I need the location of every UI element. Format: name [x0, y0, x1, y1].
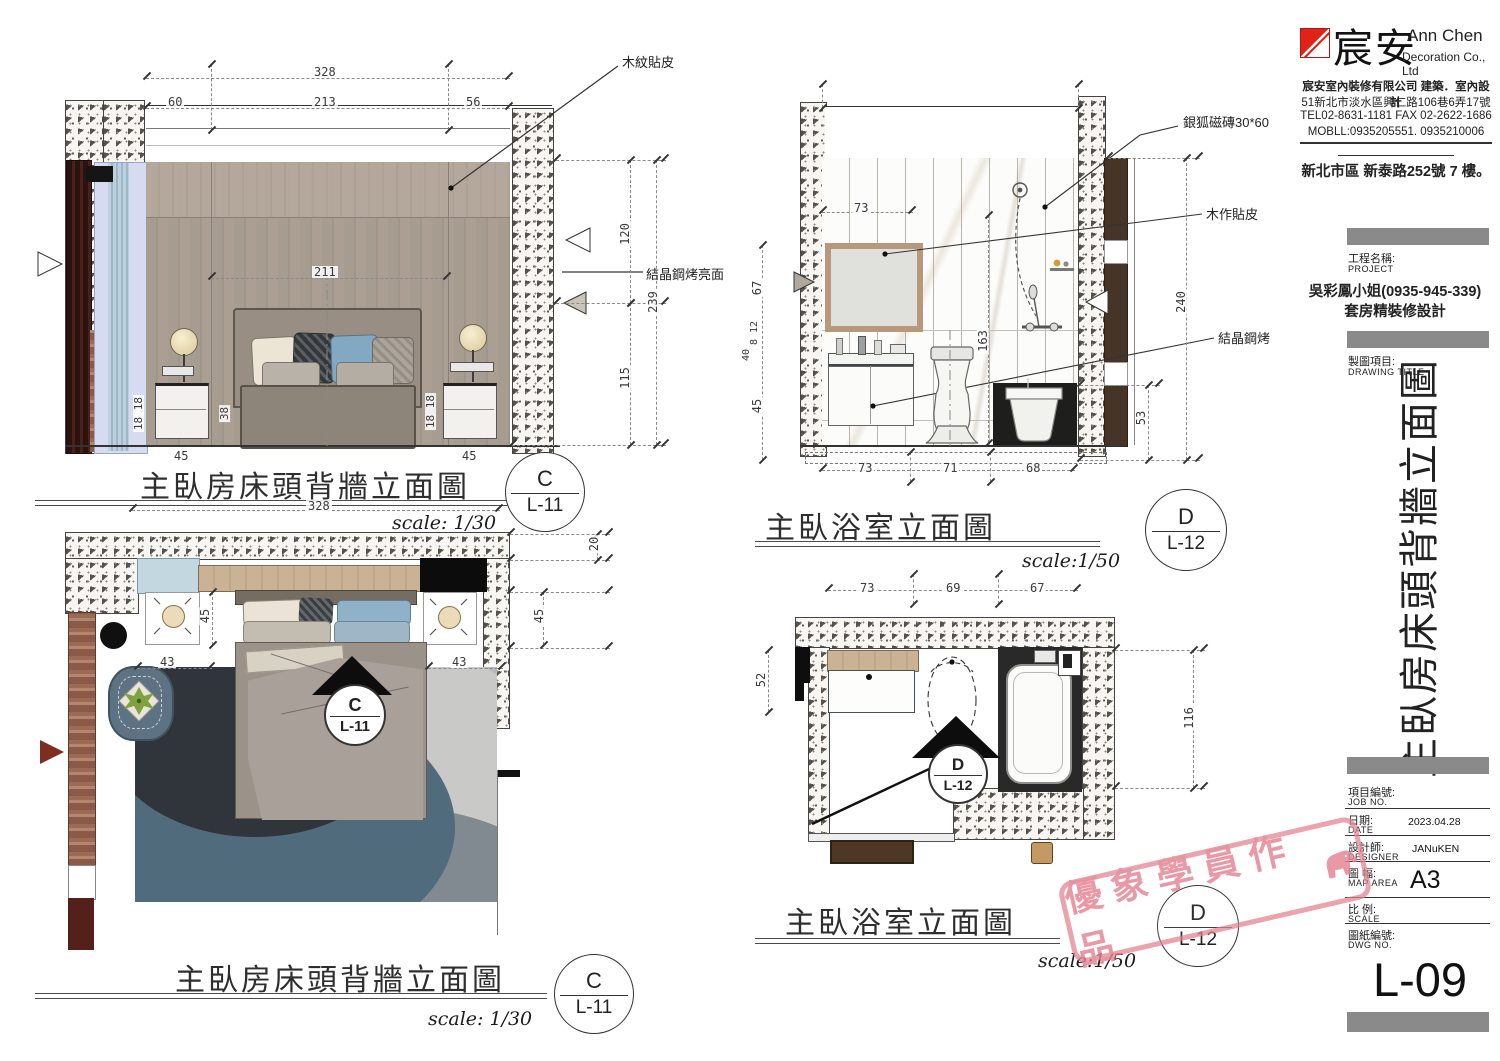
dim-bathplan-t3: 67 — [1028, 582, 1046, 594]
bedplan-stool-black — [100, 622, 127, 649]
dim-bedplan-20-label: 20 — [588, 535, 600, 553]
vanity-door-divider — [870, 366, 871, 424]
bedplan-left-brick-gap — [68, 865, 96, 900]
bedelev-panel-joint-h — [146, 217, 510, 218]
bathelev-toptick-r — [1078, 84, 1079, 108]
bedplan-black-cabinet — [420, 558, 487, 592]
client-name: 吳彩鳳小姐(0935-945-339) — [1290, 280, 1500, 301]
bathplan-title-underline — [755, 938, 1060, 944]
bidet-black-box — [993, 383, 1077, 445]
bathplan-black-step — [795, 683, 804, 701]
dim-bathelev-53-label: 53 — [1135, 409, 1147, 427]
project-label-en: PROJECT — [1348, 264, 1394, 274]
dim-bedplan-43l — [137, 668, 212, 669]
bedelev-panel-joint-1 — [211, 162, 212, 445]
dim-bedelev-inner-label: 211 — [312, 266, 338, 278]
bathplan-ttick-2 — [998, 574, 999, 604]
label-crystal-gloss: 結晶鋼烤亮面 — [646, 264, 724, 283]
dim-bathelev-b1: 73 — [856, 462, 874, 474]
vertical-drawing-title: 主臥房床頭背牆立面圖 — [1387, 368, 1439, 778]
bathplan-marker-circle: D L-12 — [928, 744, 988, 804]
site-address: 新北市區 新泰路252號 7 樓。 — [1294, 160, 1498, 181]
dim-bedelev-segtick-2 — [448, 64, 449, 130]
company-logo-en1: Ann Chen — [1407, 26, 1483, 46]
dim-bedelev-ext-bot — [512, 445, 666, 446]
nightstand-left-divider — [156, 409, 206, 410]
bedelev-sheer-curtain — [108, 163, 129, 451]
vanity-faucet — [858, 336, 866, 355]
nightstand-right — [443, 383, 497, 439]
vanity-bottle-1 — [836, 338, 843, 355]
bedelev-molding-line-1 — [146, 128, 510, 129]
dim-bathelev-l2: 8 12 — [750, 319, 760, 347]
bathplan-outside-cabinet — [830, 840, 914, 864]
dwg-no-label-en: DWG NO. — [1348, 940, 1392, 950]
bathplan-marker-letter: D — [934, 754, 982, 776]
dim-bathplan-t2: 69 — [944, 582, 962, 594]
dim-bathelev-l4: 45 — [751, 397, 763, 415]
bathelev-ref-sheet: L-12 — [1167, 532, 1205, 557]
graybar-4 — [1347, 1012, 1489, 1032]
dim-bathplan-t1: 73 — [858, 582, 876, 594]
bathplan-tub-faucet — [1034, 650, 1056, 663]
dim-nightstand-left: 18 18 — [133, 395, 144, 432]
titleblock-divider-short — [1338, 155, 1454, 156]
bedelev-right-wall-hatch — [512, 108, 554, 454]
tbl-line-4 — [1345, 897, 1490, 898]
tbl-line-3 — [1345, 861, 1490, 862]
tbl-line-1 — [1345, 808, 1490, 809]
bedplan-headwall-wood — [198, 565, 425, 592]
bedelev-scale: scale: 1/30 — [392, 512, 496, 534]
graybar-2 — [1347, 331, 1489, 348]
dim-bedelev-total-label: 328 — [312, 66, 338, 78]
lamp-right-shade — [459, 324, 487, 352]
dim-bedelev-seg2: 213 — [312, 96, 338, 108]
vanity-cabinet — [828, 366, 914, 426]
outlet-right — [450, 362, 494, 372]
bathelev-toptick-l — [822, 84, 823, 108]
bathelev-cabinet-edge — [1134, 158, 1135, 445]
bedplan-top-wall — [65, 532, 510, 560]
dim-bedplan-43r-label: 43 — [450, 656, 468, 668]
bathelev-cabinet-gap-1 — [1104, 240, 1128, 264]
bathelev-ext-bot — [1080, 460, 1200, 461]
bedelev-window-frame-piece — [86, 166, 113, 182]
graybar-1 — [1347, 228, 1489, 245]
bedplan-ref-letter: C — [560, 967, 627, 996]
dim-bathelev-top-label: 73 — [852, 202, 870, 214]
bedelev-ref-sheet: L-11 — [527, 494, 564, 519]
bedelev-ref-letter: C — [511, 465, 578, 494]
bathelev-btick-1 — [910, 452, 911, 482]
bedelev-wood-upper-band — [146, 162, 510, 217]
bathelev-right-wall — [1078, 96, 1106, 457]
bed-base — [240, 385, 416, 449]
company-info-2: 51新北市淡水區興仁路106巷6弄17號 — [1298, 94, 1494, 110]
dim-bedplan-head-label: 45 — [199, 607, 211, 625]
bedplan-ext-3 — [510, 592, 610, 593]
bathplan-title: 主臥浴室立面圖 — [785, 898, 1016, 942]
tbl-line-5 — [1345, 923, 1490, 924]
tbl-line-2 — [1345, 835, 1490, 836]
bathplan-vanity-knob — [866, 674, 872, 680]
nightstand-right-divider — [444, 409, 494, 410]
dim-bedelev-htotal-label: 239 — [647, 289, 659, 315]
bathplan-wc-paper — [1063, 654, 1072, 668]
dim-bedelev-45l: 45 — [172, 450, 190, 462]
bedelev-floor-line — [66, 445, 560, 447]
dim-bedplan-total-label: 328 — [306, 500, 332, 512]
dim-bathelev-b3: 68 — [1024, 462, 1042, 474]
dim-bedelev-h1-label: 120 — [619, 221, 631, 247]
bathplan-left-wall — [808, 647, 830, 840]
label-crystal-bake: 結晶鋼烤 — [1218, 328, 1270, 347]
designer-value: JANuKEN — [1412, 843, 1459, 855]
outlet-left — [162, 366, 194, 376]
bedplan-ext-4 — [510, 648, 610, 649]
dim-bedplan-43l-label: 43 — [158, 656, 176, 668]
bathelev-ref-letter: D — [1152, 503, 1221, 532]
company-info-3: TEL02-8631-1181 FAX 02-2622-1686 — [1298, 110, 1494, 122]
label-silverfox-tile: 銀狐磁磚30*60 — [1183, 112, 1269, 131]
bedplan-marker-circle: C L-11 — [324, 684, 386, 746]
dim-bathelev-b2: 71 — [941, 462, 959, 474]
dim-bedelev-45r: 45 — [460, 450, 478, 462]
bedelev-wall-top-line — [146, 105, 552, 106]
dim-bed-height: 38 — [219, 405, 230, 422]
toilet-plan-dashed — [928, 657, 976, 743]
mirror — [825, 243, 923, 332]
bedelev-title-underline — [35, 500, 513, 506]
bathelev-ceiling-band — [825, 106, 1078, 161]
bathplan-ttick-1 — [913, 574, 914, 604]
graybar-3 — [1347, 757, 1489, 774]
bedelev-ref-circle: C L-11 — [505, 452, 585, 532]
company-logo-mark — [1300, 28, 1330, 58]
bathelev-cabinet-strip — [1104, 158, 1128, 447]
dim-bedplan-45r-label: 45 — [533, 607, 545, 625]
bedplan-left-brick — [68, 612, 96, 867]
bathelev-cabinet-gap-2 — [1104, 362, 1128, 386]
vanity-counter — [828, 353, 914, 367]
bedplan-marker-sheet: L-11 — [340, 717, 370, 737]
company-logo-en2: Decoration Co., Ltd — [1402, 50, 1500, 78]
dim-bathplan-right-label: 116 — [1183, 705, 1195, 731]
bathplan-vanity-counter — [827, 650, 919, 672]
dim-bathelev-mid-label: 163 — [977, 328, 989, 354]
vanity-soap — [890, 344, 906, 354]
bathelev-title-underline — [755, 541, 1100, 547]
elephant-icon — [1316, 838, 1363, 884]
door-swing — [812, 762, 944, 824]
bedplan-pillow-5 — [334, 621, 410, 644]
bedplan-ref-sheet: L-11 — [576, 996, 613, 1021]
dim-bedelev-seg1: 60 — [166, 96, 184, 108]
bedelev-curtain-dark — [66, 160, 92, 454]
dim-bathelev-l1: 67 — [751, 279, 763, 297]
bathplan-top-wall — [795, 617, 1115, 649]
dim-bedelev-segtick-1 — [211, 64, 212, 130]
dim-bathelev-240-label: 240 — [1175, 289, 1187, 315]
bathelev-floor — [800, 445, 1126, 447]
project-name: 套房精裝修設計 — [1290, 300, 1500, 321]
bedplan-scale: scale: 1/30 — [428, 1008, 532, 1030]
vanity-bottle-2 — [874, 340, 882, 355]
bedplan-right-wall-line — [497, 770, 498, 935]
bedelev-molding-line-2 — [146, 145, 510, 146]
bedplan-lamp-right — [438, 606, 461, 629]
dim-bathplan-left-label: 52 — [755, 671, 767, 689]
bathelev-ref-circle: D L-12 — [1145, 489, 1227, 571]
date-value: 2023.04.28 — [1408, 816, 1461, 828]
armchair-cushion — [118, 676, 162, 729]
bathelev-scale: scale:1/50 — [1022, 550, 1120, 572]
dim-bathelev-l3: 40 — [742, 347, 752, 363]
bedplan-title-underline — [35, 993, 547, 999]
maparea-value: A3 — [1410, 866, 1441, 895]
dim-nightstand-right: 18 18 — [425, 393, 436, 430]
bathelev-btick-2 — [990, 452, 991, 482]
bedplan-left-wall — [65, 558, 139, 614]
bedplan-ref-circle: C L-11 — [554, 954, 634, 1034]
bedplan-left-brick-dark — [68, 898, 94, 950]
nightstand-left — [155, 383, 209, 439]
company-info-4: MOBLL:0935205551. 0935210006 — [1298, 126, 1494, 138]
titleblock-divider-1 — [1300, 142, 1492, 144]
dim-bedelev-h2-label: 115 — [619, 365, 631, 391]
bathplan-black-niche — [795, 647, 810, 683]
dim-bedelev-seg3: 56 — [464, 96, 482, 108]
bedplan-lightblue-cabinet — [137, 558, 200, 594]
bathplan-tub-inner — [1013, 672, 1063, 774]
bedplan-lamp-left — [162, 605, 185, 628]
bedplan-marker-letter: C — [330, 694, 380, 718]
dim-bathelev-left-chain — [762, 245, 763, 460]
job-no-label-en: JOB NO. — [1348, 797, 1388, 807]
bathplan-right-wall — [1082, 647, 1115, 840]
lamp-left-shade — [170, 328, 198, 356]
bathplan-outside-stool — [1031, 842, 1053, 864]
bedplan-pillow-4 — [243, 621, 331, 644]
label-wood-work-veneer: 木作貼皮 — [1206, 204, 1258, 223]
bathplan-marker-sheet: L-12 — [944, 776, 973, 794]
drawing-sheet: 328 60 213 56 211 120 115 239 18 18 18 1… — [0, 0, 1500, 1061]
sheet-number: L-09 — [1340, 952, 1500, 1007]
dim-bedelev-ext-top — [556, 160, 666, 161]
label-wood-veneer: 木紋貼皮 — [622, 52, 674, 71]
